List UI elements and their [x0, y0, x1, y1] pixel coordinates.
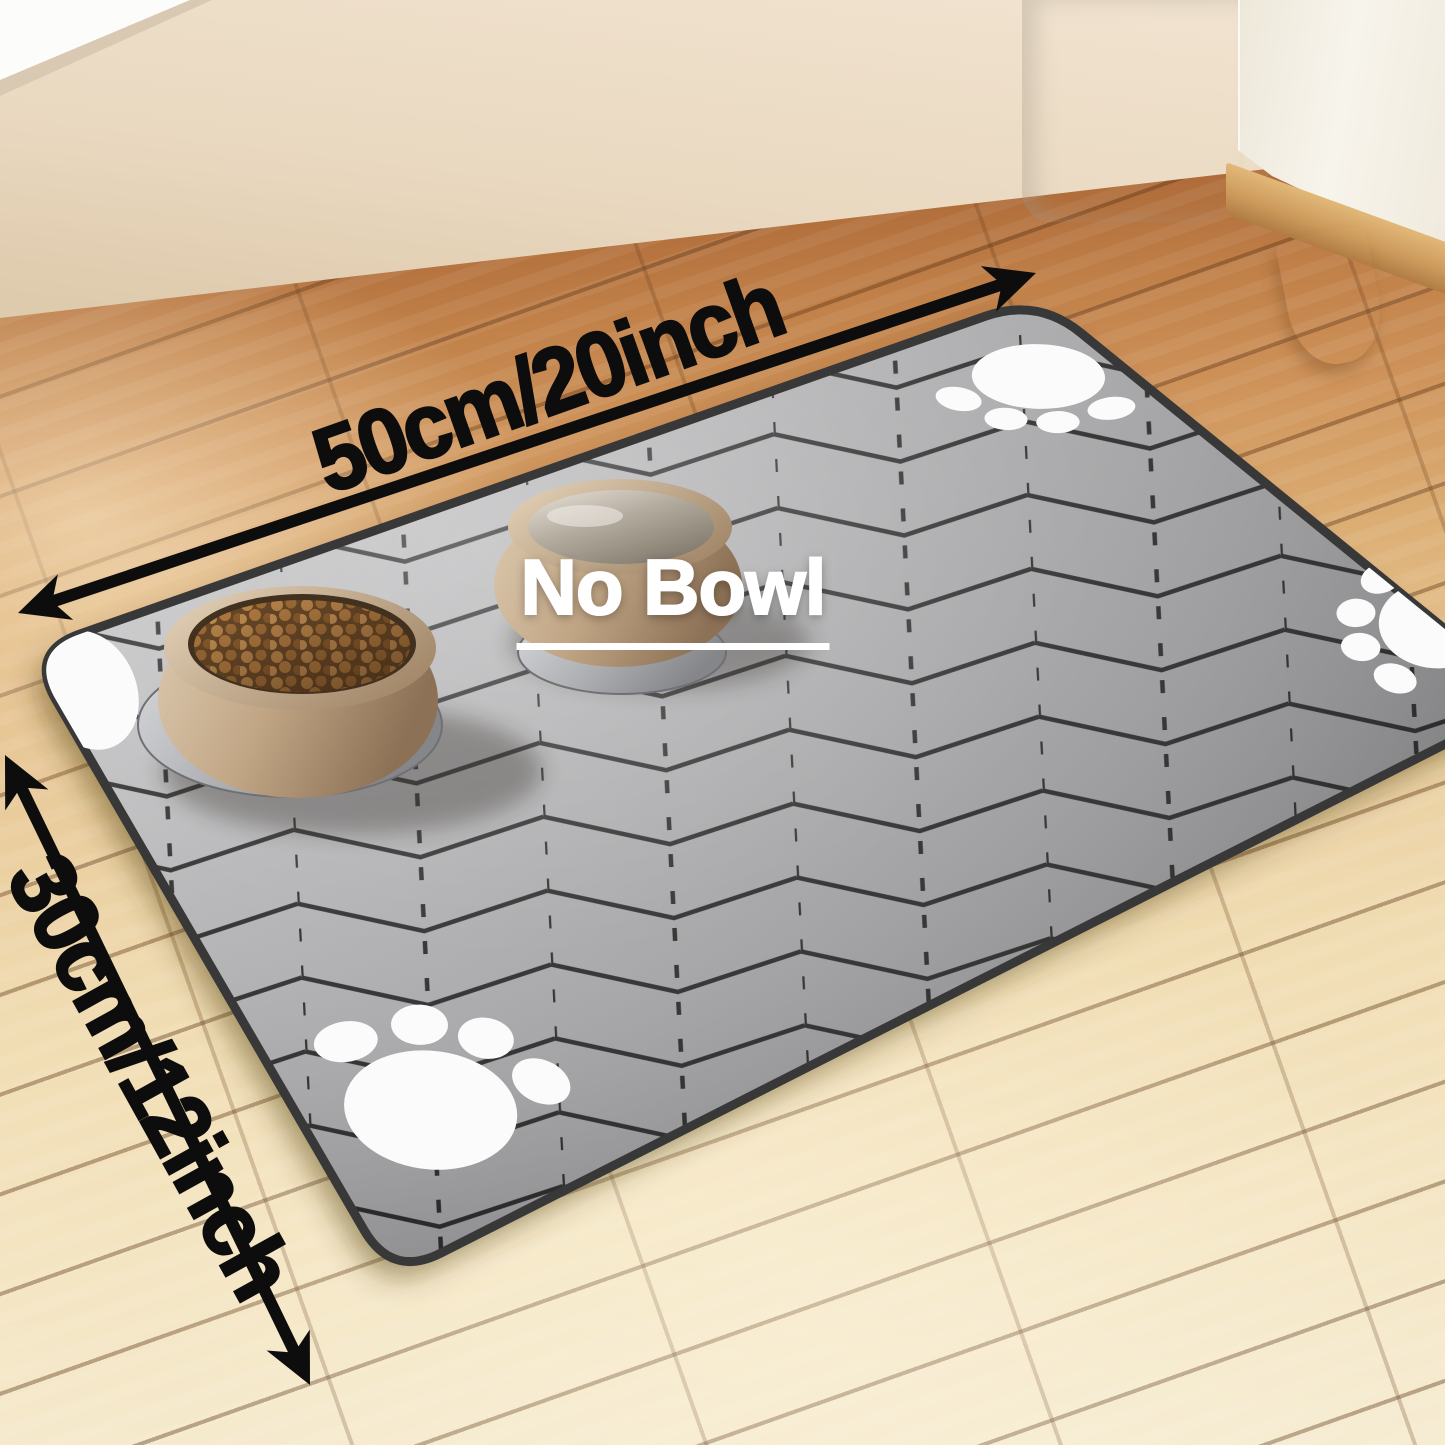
food-bowl	[138, 586, 442, 798]
no-bowl-label: No Bowl	[517, 542, 830, 650]
product-photo-scene: 50cm/20inch 30cm/12inch No Bowl	[0, 0, 1445, 1445]
